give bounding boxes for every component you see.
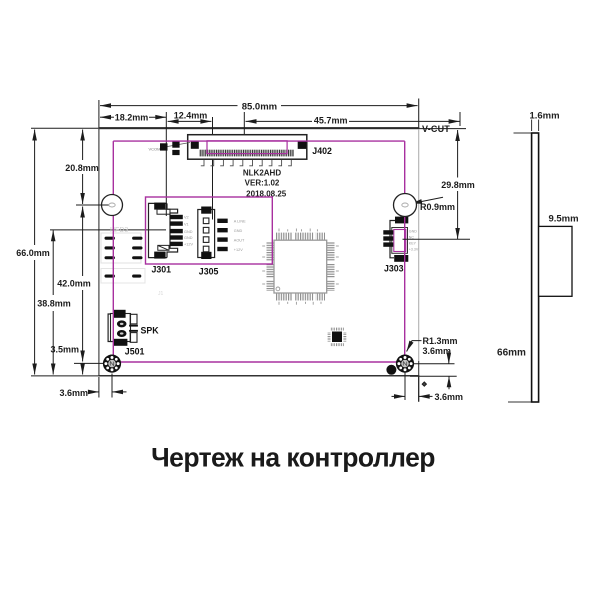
svg-text:1.6mm: 1.6mm: [529, 111, 559, 122]
svg-text:KEY: KEY: [409, 242, 417, 246]
svg-text:42.0mm: 42.0mm: [57, 279, 91, 289]
svg-text:+12V: +12V: [184, 243, 193, 247]
svg-text:VCOM: VCOM: [149, 147, 161, 152]
svg-text:VER:1.02: VER:1.02: [245, 179, 280, 188]
svg-text:66mm: 66mm: [497, 348, 526, 359]
svg-text:R1.3mm: R1.3mm: [423, 336, 458, 346]
svg-text:3.6mm: 3.6mm: [435, 392, 464, 402]
svg-text:85.0mm: 85.0mm: [242, 101, 277, 112]
svg-text:R0.9mm: R0.9mm: [420, 202, 455, 212]
svg-text:20.8mm: 20.8mm: [65, 163, 99, 173]
svg-text:18.2mm: 18.2mm: [115, 113, 149, 123]
svg-text:A LINE: A LINE: [234, 220, 246, 224]
svg-text:38.8mm: 38.8mm: [37, 299, 71, 309]
svg-text:J1: J1: [158, 291, 164, 297]
svg-text:NLK2AHD: NLK2AHD: [243, 169, 281, 178]
svg-text:J305: J305: [199, 267, 219, 277]
svg-text:3.6mm: 3.6mm: [59, 388, 88, 398]
svg-text:J301: J301: [152, 264, 172, 274]
svg-text:V2: V2: [184, 216, 189, 220]
svg-text:GND: GND: [234, 229, 243, 233]
svg-text:GND: GND: [409, 230, 417, 234]
svg-text:AOUT: AOUT: [234, 238, 245, 242]
svg-text:J303: J303: [384, 264, 404, 274]
svg-text:12.4mm: 12.4mm: [174, 110, 208, 120]
svg-text:66.0mm: 66.0mm: [16, 248, 50, 258]
svg-text:SPK: SPK: [141, 325, 160, 335]
svg-text:+12V: +12V: [234, 248, 243, 252]
svg-text:J402: J402: [312, 146, 332, 156]
svg-text:J501: J501: [125, 347, 145, 357]
svg-text:+3.3V: +3.3V: [409, 248, 419, 252]
svg-text:V-CUT: V-CUT: [422, 124, 450, 134]
svg-text:3.5mm: 3.5mm: [50, 345, 79, 355]
svg-text:Чертеж на контроллер: Чертеж на контроллер: [151, 443, 435, 473]
svg-text:V1: V1: [184, 222, 189, 226]
svg-text:3.6mm: 3.6mm: [423, 346, 452, 356]
svg-text:29.8mm: 29.8mm: [441, 180, 475, 190]
svg-text:GND: GND: [184, 230, 193, 234]
svg-text:GND: GND: [184, 236, 193, 240]
svg-text:9.5mm: 9.5mm: [548, 214, 578, 225]
svg-text:45.7mm: 45.7mm: [314, 116, 348, 126]
